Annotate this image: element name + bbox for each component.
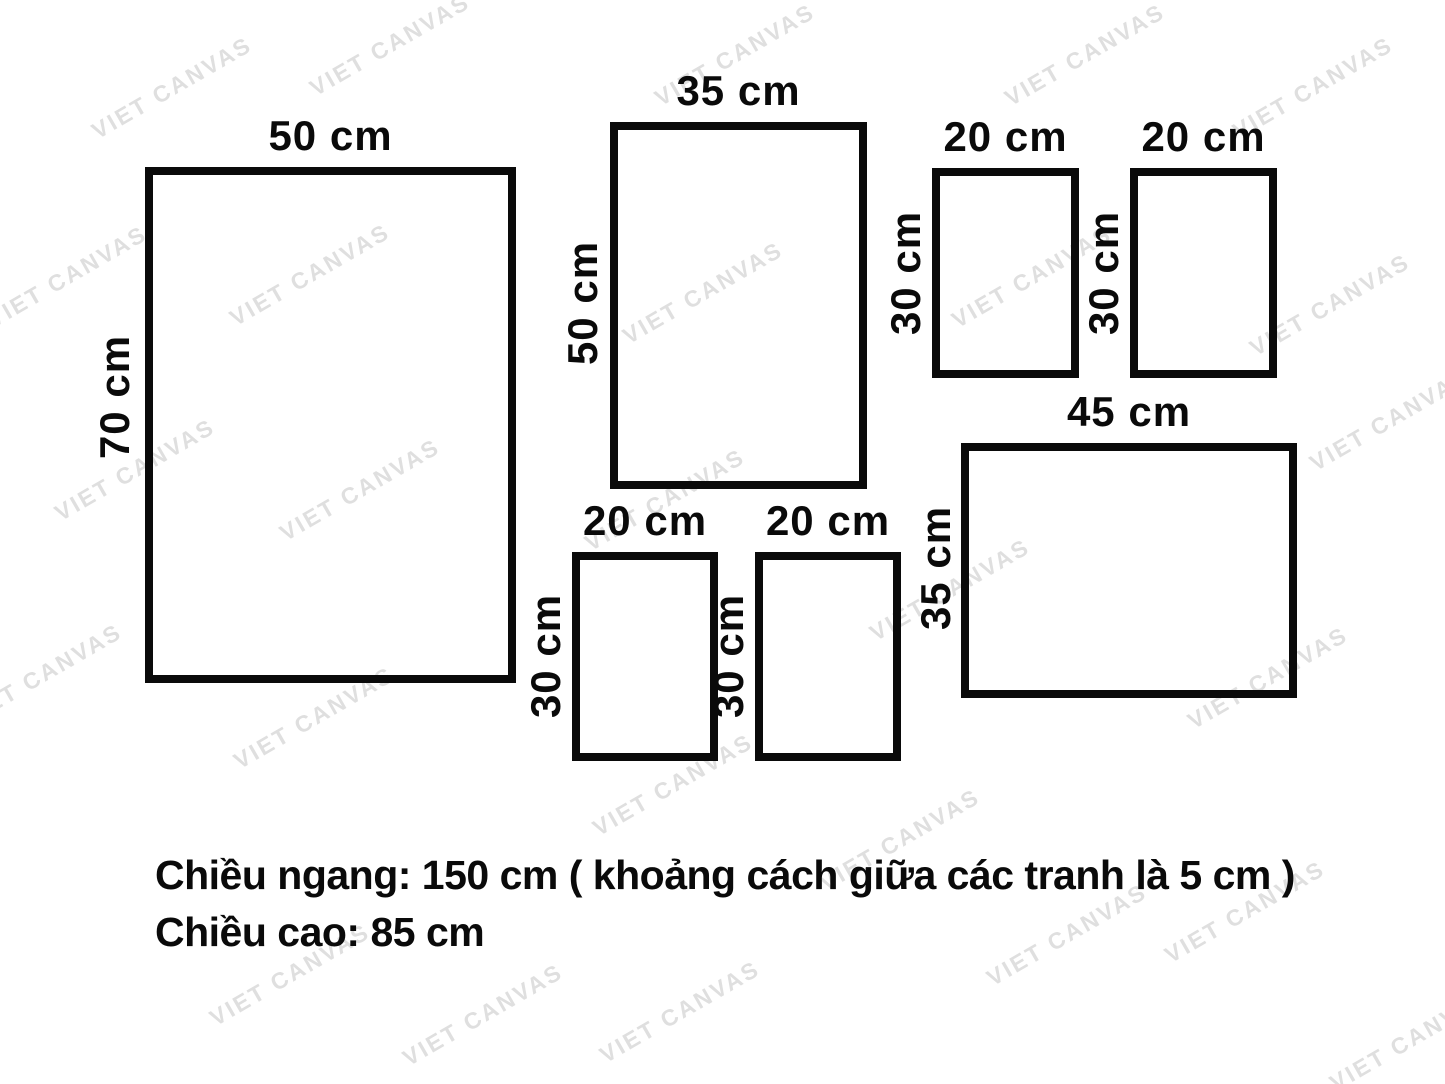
frame-20x30-bottom-left-height-label: 30 cm <box>522 594 570 718</box>
frame-35x50-width-label: 35 cm <box>610 66 867 116</box>
frame-50x70-height-label: 70 cm <box>91 335 139 459</box>
note-horizontal-size: Chiều ngang: 150 cm ( khoảng cách giữa c… <box>155 850 1295 900</box>
frame-20x30-top-left-outline <box>932 168 1079 378</box>
frame-20x30-top-right-outline <box>1130 168 1277 378</box>
frame-45x35-height-label: 35 cm <box>912 506 960 630</box>
frame-20x30-top-right-width-label: 20 cm <box>1130 112 1277 162</box>
frame-45x35-width-label: 45 cm <box>961 387 1297 437</box>
frame-20x30-bottom-right-width-label: 20 cm <box>755 496 901 546</box>
note-vertical-size: Chiều cao: 85 cm <box>155 907 484 957</box>
frame-50x70-outline <box>145 167 516 683</box>
frame-50x70-width-label: 50 cm <box>145 111 516 161</box>
frame-45x35-outline <box>961 443 1297 698</box>
frame-20x30-top-left-width-label: 20 cm <box>932 112 1079 162</box>
frame-20x30-top-left-height-label: 30 cm <box>882 211 930 335</box>
frame-20x30-bottom-right-outline <box>755 552 901 761</box>
frame-20x30-bottom-right-height-label: 30 cm <box>705 594 753 718</box>
frame-35x50-height-label: 50 cm <box>559 241 607 365</box>
frame-20x30-bottom-left-outline <box>572 552 718 761</box>
gallery-layout-diagram: VIET CANVASVIET CANVASVIET CANVASVIET CA… <box>0 0 1445 1084</box>
frame-35x50-outline <box>610 122 867 489</box>
frame-20x30-bottom-left-width-label: 20 cm <box>572 496 718 546</box>
frame-20x30-top-right-height-label: 30 cm <box>1080 211 1128 335</box>
frame-layout: 50 cm 70 cm 35 cm 50 cm 20 cm 30 cm 20 c… <box>0 0 1445 1084</box>
